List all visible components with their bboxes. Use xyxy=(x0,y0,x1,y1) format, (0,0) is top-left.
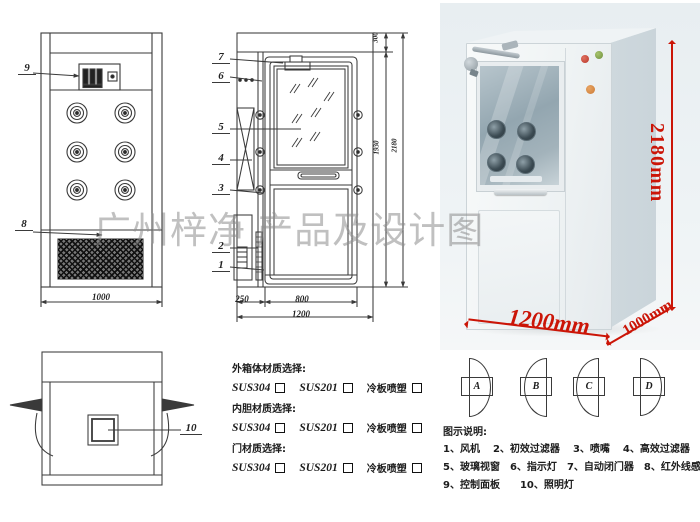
door-config-letter: C xyxy=(573,377,605,396)
legend-row-1: 1、风机 2、初效过滤器 3、喷嘴 4、高效过滤器 xyxy=(443,443,695,456)
option-label: SUS304 xyxy=(232,422,270,434)
side-dim-250: 250 xyxy=(228,295,256,304)
door-config-letter: D xyxy=(633,377,665,396)
option-label: SUS201 xyxy=(299,422,337,434)
callout-9: 9 xyxy=(18,63,36,75)
side-cabinet-outline xyxy=(237,33,373,287)
callout-4: 4 xyxy=(212,153,230,165)
legend-item: 6、指示灯 xyxy=(510,461,557,474)
door-config-a[interactable]: A xyxy=(452,356,498,418)
legend-title: 图示说明: xyxy=(443,426,695,439)
door-config-d[interactable]: D xyxy=(626,356,672,418)
checkbox[interactable] xyxy=(275,423,285,433)
photo-height-dim: 2180mm xyxy=(642,95,668,230)
door-swing-left xyxy=(10,399,42,411)
door-material-title: 门材质选择: xyxy=(232,444,437,456)
callout-5: 5 xyxy=(212,122,230,134)
side-dim-total: 2180 xyxy=(391,135,400,157)
photo-nozzle xyxy=(517,122,536,141)
checkbox[interactable] xyxy=(275,463,285,473)
inner-material-title: 内胆材质选择: xyxy=(232,404,437,416)
legend-item: 1、风机 xyxy=(443,443,480,456)
option-label: 冷板喷塑 xyxy=(367,460,407,475)
side-dim-800: 800 xyxy=(282,295,322,304)
option-label: 冷板喷塑 xyxy=(367,420,407,435)
side-view-drawing xyxy=(210,25,420,335)
glass-hatch-marks xyxy=(290,78,334,147)
product-photo: 2180mm 1200mm 1000mm xyxy=(440,3,700,350)
inner-material-options: SUS304 SUS201 冷板喷塑 xyxy=(232,420,437,435)
legend-item: 8、红外线感应器 xyxy=(644,461,700,474)
legend-row-2: 5、玻璃视窗 6、指示灯 7、自动闭门器 8、红外线感应器 xyxy=(443,461,695,474)
checkbox[interactable] xyxy=(412,383,422,393)
door-handle xyxy=(298,172,339,179)
legend-item: 10、照明灯 xyxy=(520,479,574,492)
height-dim-line xyxy=(671,43,673,309)
door-config-letter: B xyxy=(520,377,552,396)
front-nozzles xyxy=(67,103,135,200)
outer-material-options: SUS304 SUS201 冷板喷塑 xyxy=(232,380,437,395)
option-label: SUS304 xyxy=(232,462,270,474)
front-width-dim: 1000 xyxy=(83,293,119,302)
callout-7: 7 xyxy=(212,52,230,64)
option-label: SUS201 xyxy=(299,462,337,474)
outer-material-title: 外箱体材质选择: xyxy=(232,364,437,376)
checkbox[interactable] xyxy=(412,423,422,433)
orange-button xyxy=(586,85,595,94)
top-view-drawing xyxy=(5,345,205,500)
material-selection: 外箱体材质选择: SUS304 SUS201 冷板喷塑 内胆材质选择: SUS3… xyxy=(232,364,437,484)
inner-sill xyxy=(490,176,542,182)
callout-8: 8 xyxy=(15,219,33,231)
checkbox[interactable] xyxy=(343,423,353,433)
door-material-options: SUS304 SUS201 冷板喷塑 xyxy=(232,460,437,475)
legend-row-3: 9、控制面板 10、照明灯 xyxy=(443,479,695,492)
door-config-c[interactable]: C xyxy=(568,356,614,418)
photo-nozzle xyxy=(487,120,506,139)
design-sheet: 9 8 1000 xyxy=(0,0,700,522)
legend-item: 9、控制面板 xyxy=(443,479,500,492)
door-config-letter: A xyxy=(461,377,493,396)
legend-item: 4、高效过滤器 xyxy=(623,443,690,456)
side-dim-1200: 1200 xyxy=(278,310,324,319)
checkbox[interactable] xyxy=(412,463,422,473)
photo-nozzle xyxy=(516,155,535,174)
jamb-nozzles xyxy=(256,111,362,194)
red-indicator-light xyxy=(581,55,589,63)
option-label: 冷板喷塑 xyxy=(367,380,407,395)
legend-item: 3、喷嘴 xyxy=(573,443,610,456)
legend-item: 7、自动闭门器 xyxy=(567,461,634,474)
side-dim-inner: 1930 xyxy=(373,137,382,159)
option-label: SUS304 xyxy=(232,382,270,394)
callout-6: 6 xyxy=(212,71,230,83)
front-grille-mesh xyxy=(58,239,143,279)
legend: 图示说明: 1、风机 2、初效过滤器 3、喷嘴 4、高效过滤器 5、玻璃视窗 6… xyxy=(443,426,695,497)
callout-2: 2 xyxy=(212,241,230,253)
callout-1: 1 xyxy=(212,260,230,272)
checkbox[interactable] xyxy=(343,383,353,393)
option-label: SUS201 xyxy=(299,382,337,394)
side-dim-top: 300 xyxy=(372,30,381,46)
callout-10: 10 xyxy=(180,423,202,435)
checkbox[interactable] xyxy=(343,463,353,473)
door-config-b[interactable]: B xyxy=(512,356,558,418)
checkbox[interactable] xyxy=(275,383,285,393)
photo-nozzle xyxy=(487,153,506,172)
callout-3: 3 xyxy=(212,183,230,195)
door-edge-line xyxy=(565,48,566,324)
photo-door-handle xyxy=(494,189,547,195)
green-indicator-light xyxy=(595,51,603,59)
legend-item: 2、初效过滤器 xyxy=(493,443,560,456)
legend-item: 5、玻璃视窗 xyxy=(443,461,500,474)
door-swing-right xyxy=(162,399,194,411)
